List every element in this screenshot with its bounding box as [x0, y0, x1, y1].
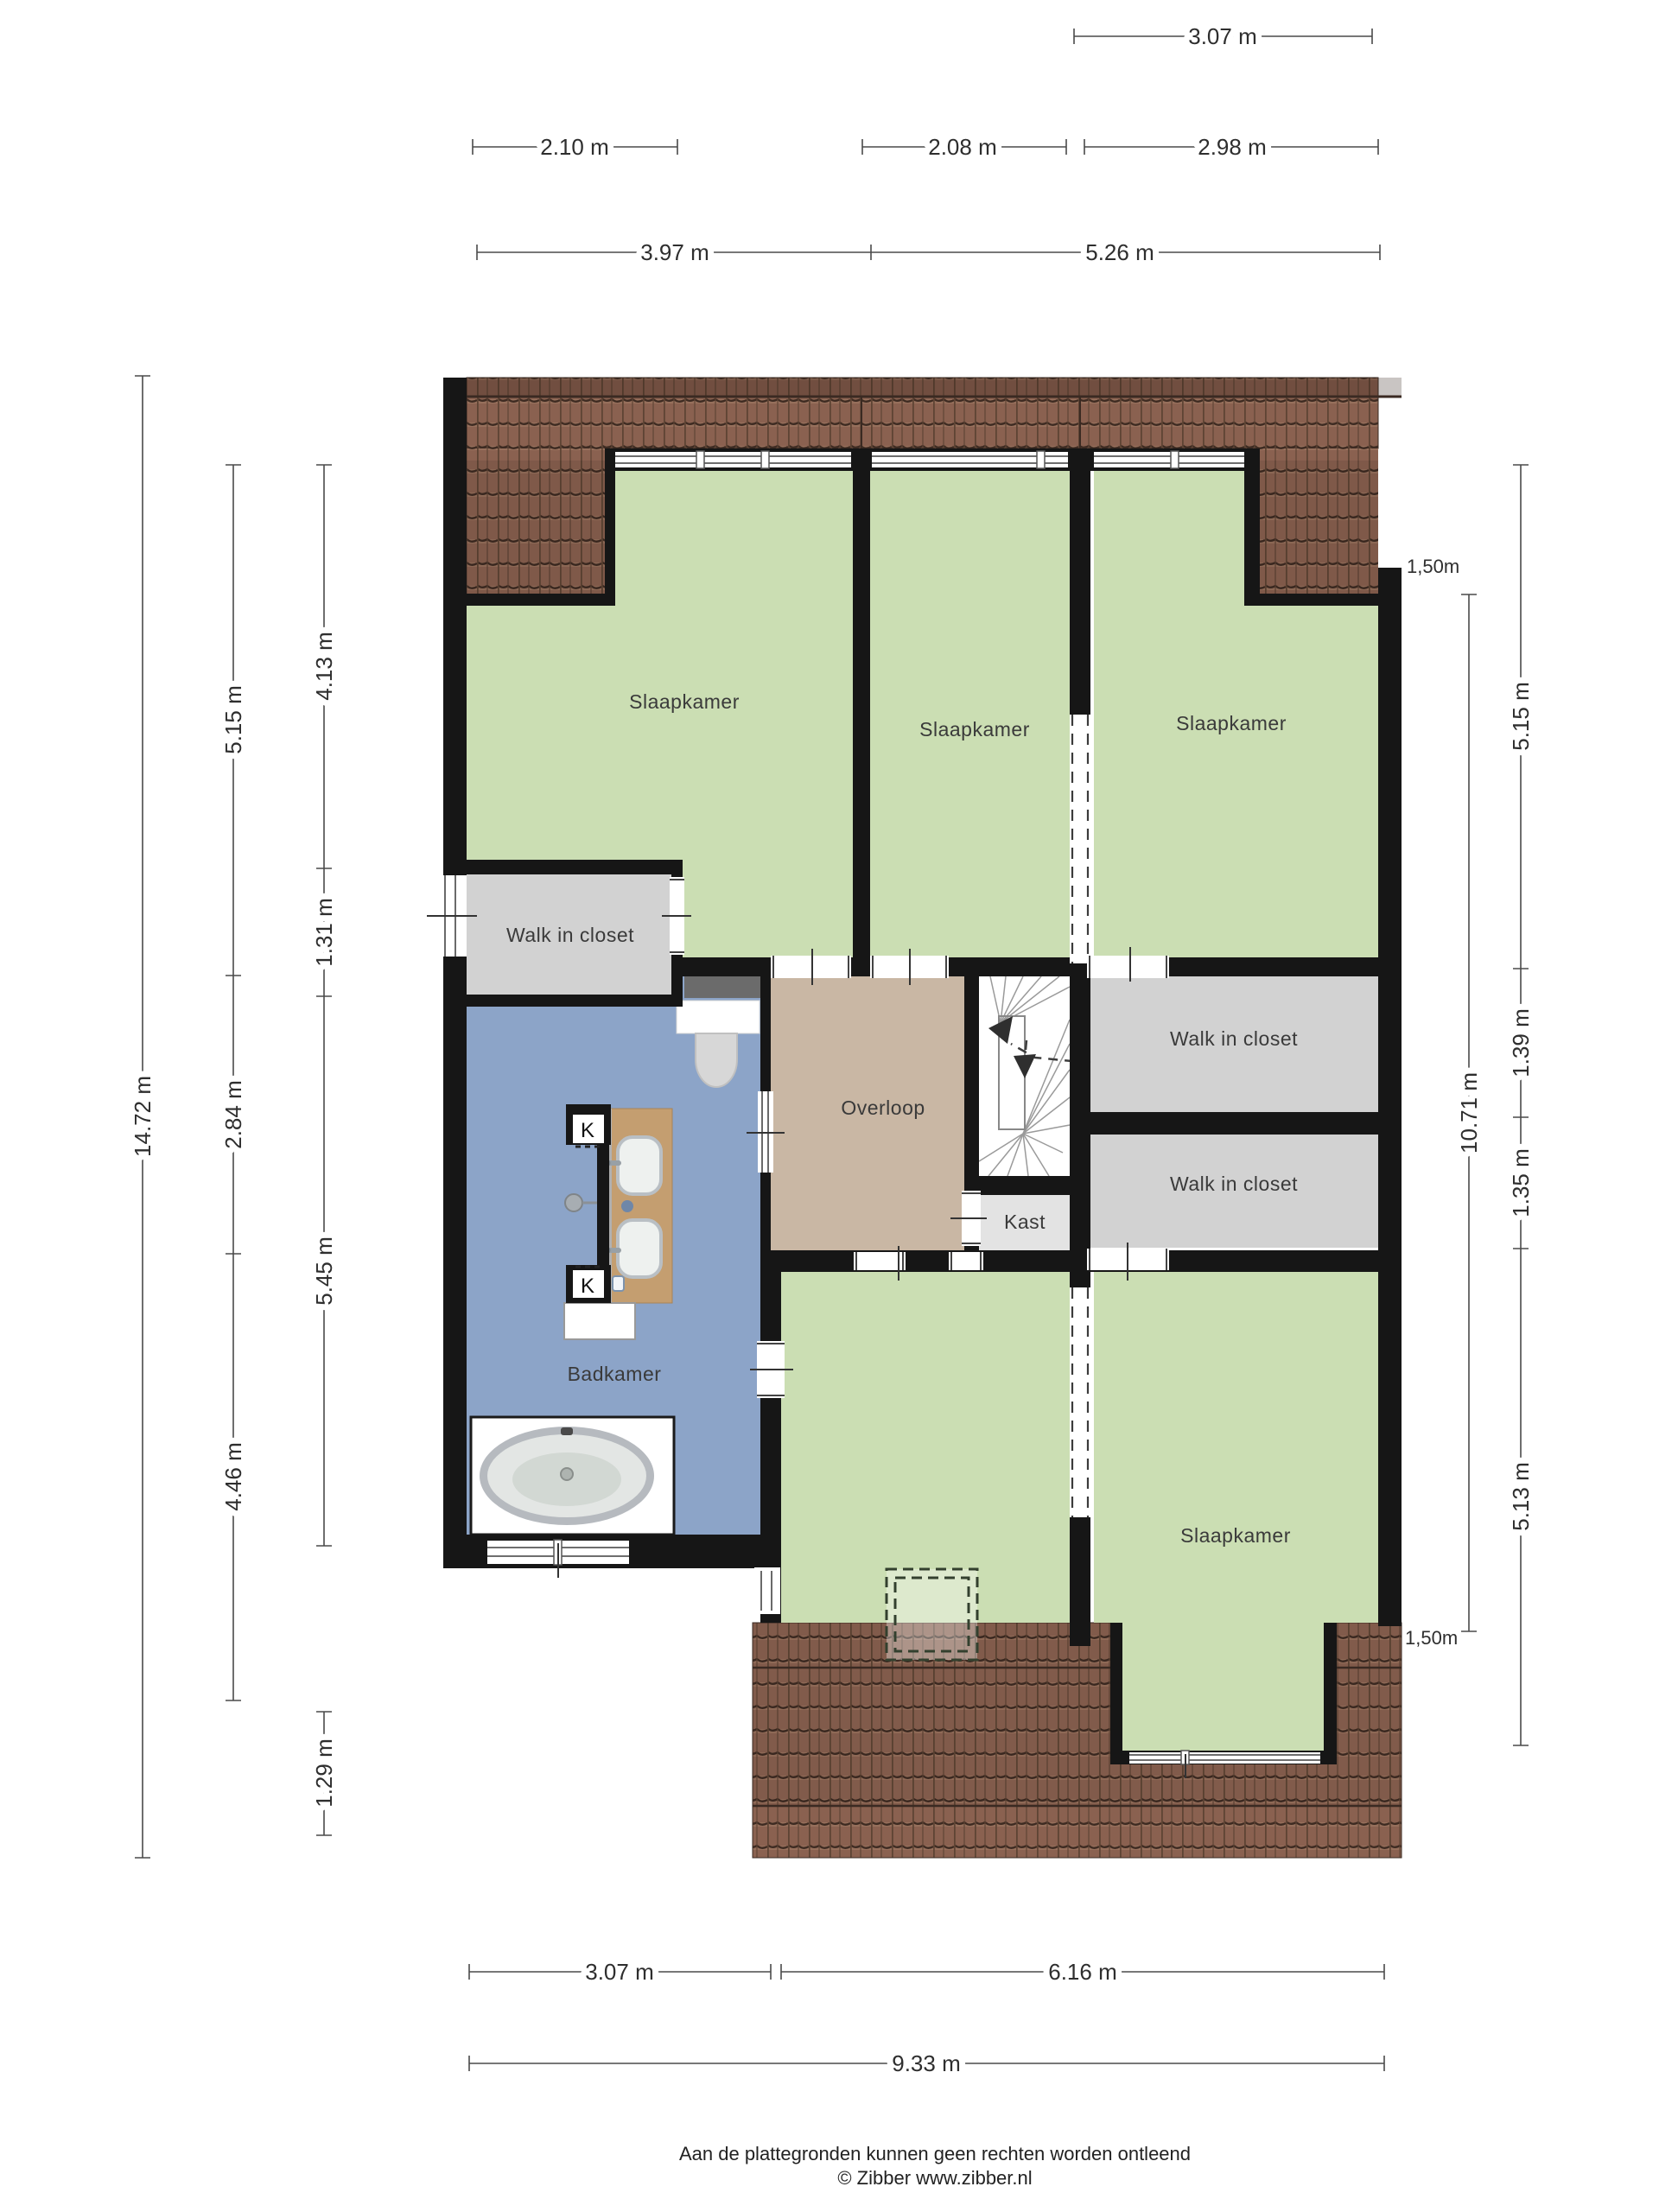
tub-drain-icon — [561, 1468, 573, 1480]
dim-1.29: 1.29 m — [311, 1712, 337, 1835]
dim-6.16: 6.16 m — [781, 1959, 1384, 1985]
dim-2.08: 2.08 m — [862, 134, 1066, 160]
dimension-lines-top: 3.07 m 2.10 m 2.08 m 2.98 m 3.97 m 5.26 … — [473, 23, 1380, 265]
footer-disclaimer: Aan de plattegronden kunnen geen rechten… — [679, 2143, 1191, 2164]
svg-text:5.45 m: 5.45 m — [311, 1236, 337, 1306]
dim-4.13: 4.13 m — [311, 465, 337, 868]
svg-text:6.16 m: 6.16 m — [1048, 1959, 1117, 1985]
shaft-label: K — [581, 1119, 594, 1142]
shaft-k-upper: K — [573, 1115, 604, 1147]
dim-4.46: 4.46 m — [220, 1254, 246, 1700]
footer-copyright: © Zibber www.zibber.nl — [837, 2167, 1032, 2189]
dimension-lines-right: 10.71 m 5.15 m 1.39 m 1.35 m 5.13 m — [1456, 465, 1534, 1745]
svg-text:14.72 m: 14.72 m — [130, 1076, 156, 1157]
room-slaapkamer-top-middle — [870, 471, 1070, 957]
dim-3.97: 3.97 m — [477, 239, 871, 265]
svg-text:2.98 m: 2.98 m — [1198, 134, 1267, 160]
label-kast: Kast — [1004, 1211, 1046, 1233]
tub-faucet-icon — [561, 1427, 573, 1435]
label-overloop: Overloop — [841, 1096, 925, 1119]
label-badkamer: Badkamer — [568, 1363, 662, 1385]
soap-icon — [621, 1200, 633, 1212]
footer: Aan de plattegronden kunnen geen rechten… — [679, 2143, 1191, 2189]
bathtub — [471, 1417, 674, 1535]
svg-text:4.46 m: 4.46 m — [220, 1442, 246, 1511]
low-wall-dashed-bottom — [1070, 1287, 1090, 1517]
label-slaapkamer-bottom-right: Slaapkamer — [1180, 1524, 1291, 1547]
window-dormer-left — [615, 451, 851, 468]
svg-text:1.29 m: 1.29 m — [311, 1738, 337, 1808]
sink-icon — [618, 1137, 661, 1194]
dim-5.45: 5.45 m — [311, 996, 337, 1546]
svg-text:1.31 m: 1.31 m — [311, 898, 337, 967]
dim-3.07-bottom: 3.07 m — [469, 1959, 771, 1985]
dim-1.35: 1.35 m — [1508, 1117, 1534, 1249]
knee-height-bottom: 1,50m — [1405, 1627, 1458, 1649]
svg-text:1.39 m: 1.39 m — [1508, 1008, 1534, 1077]
dim-2.10: 2.10 m — [473, 134, 677, 160]
dim-1.31: 1.31 m — [311, 868, 337, 996]
opening-under-stairs — [949, 1252, 983, 1270]
dim-3.07-top: 3.07 m — [1074, 23, 1372, 49]
dim-2.84: 2.84 m — [220, 976, 246, 1254]
shaft-label: K — [581, 1274, 594, 1298]
dim-5.15-right: 5.15 m — [1508, 465, 1534, 969]
label-wic-left: Walk in closet — [506, 924, 634, 946]
dim-14.72: 14.72 m — [130, 376, 156, 1858]
svg-text:9.33 m: 9.33 m — [892, 2050, 961, 2076]
svg-text:3.07 m: 3.07 m — [585, 1959, 654, 1985]
label-slaapkamer-top-middle: Slaapkamer — [919, 718, 1030, 741]
dim-10.71: 10.71 m — [1456, 594, 1482, 1631]
low-wall-dashed-top — [1070, 715, 1090, 963]
window-dormer-middle — [872, 451, 1068, 468]
label-wic-right-top: Walk in closet — [1170, 1027, 1298, 1050]
cup-icon — [613, 1276, 624, 1291]
label-slaapkamer-top-right: Slaapkamer — [1176, 712, 1287, 734]
dim-5.26: 5.26 m — [871, 239, 1380, 265]
dim-5.15-left: 5.15 m — [220, 465, 246, 976]
shower-tray — [564, 1303, 635, 1339]
window-dormer-right — [1094, 451, 1244, 468]
svg-text:10.71 m: 10.71 m — [1456, 1072, 1482, 1154]
skylight-dashed-box — [887, 1569, 977, 1660]
window-badkamer-bottom — [487, 1540, 629, 1578]
svg-text:2.84 m: 2.84 m — [220, 1080, 246, 1149]
label-wic-right-bottom: Walk in closet — [1170, 1173, 1298, 1195]
svg-text:5.15 m: 5.15 m — [220, 685, 246, 754]
svg-text:3.07 m: 3.07 m — [1188, 23, 1257, 49]
svg-text:1.35 m: 1.35 m — [1508, 1148, 1534, 1217]
svg-text:2.10 m: 2.10 m — [540, 134, 609, 160]
dim-9.33: 9.33 m — [469, 2050, 1384, 2076]
vanity — [603, 1109, 673, 1303]
svg-text:3.97 m: 3.97 m — [640, 239, 709, 265]
svg-text:5.13 m: 5.13 m — [1508, 1462, 1534, 1531]
dim-5.13: 5.13 m — [1508, 1249, 1534, 1745]
floorplan-canvas: K K — [0, 0, 1659, 2212]
shaft-k-lower: K — [573, 1267, 604, 1298]
window-terrace-door — [754, 1567, 780, 1614]
dim-2.98: 2.98 m — [1084, 134, 1378, 160]
sink-icon — [618, 1220, 661, 1277]
svg-text:5.15 m: 5.15 m — [1508, 682, 1534, 751]
svg-text:2.08 m: 2.08 m — [928, 134, 997, 160]
dimension-lines-left: 14.72 m 5.15 m 2.84 m 4.46 m 4.13 m 1.31… — [130, 376, 337, 1858]
label-slaapkamer-top-left: Slaapkamer — [629, 690, 740, 713]
svg-text:5.26 m: 5.26 m — [1085, 239, 1154, 265]
floorplan-page: K K — [0, 0, 1659, 2212]
dim-1.39: 1.39 m — [1508, 969, 1534, 1117]
dimension-lines-bottom: 3.07 m 6.16 m 9.33 m — [469, 1959, 1384, 2076]
knee-height-top: 1,50m — [1407, 556, 1459, 577]
svg-text:4.13 m: 4.13 m — [311, 632, 337, 701]
